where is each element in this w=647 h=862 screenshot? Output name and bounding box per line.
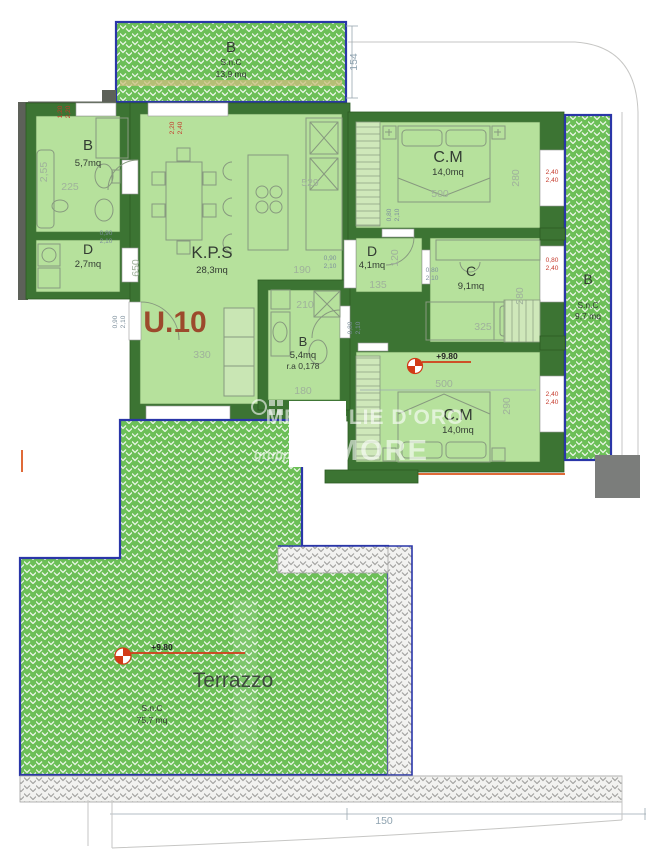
dim-bath-main-h: 2,55 [38,162,50,183]
svg-text:2,20: 2,20 [169,121,176,134]
terrace [20,420,418,775]
living-kitchen-label: K.P.S [191,243,232,262]
dim-win-right-top: 2,40 2,40 [546,169,559,184]
svg-text:0,80: 0,80 [546,257,559,264]
bedroom-top-area: 14,0mq [432,167,464,178]
elevation-value-bedroom: +9.80 [436,351,458,361]
dim-win-right-mid: 0,80 2,40 [546,257,559,272]
svg-text:2,10: 2,10 [355,321,362,334]
unit-label: U.10 [143,306,206,339]
elevation-value-terrace: +9.80 [151,642,173,652]
dim-living-passage: 190 [293,264,311,276]
svg-text:2,20: 2,20 [65,105,72,118]
floor-plan-drawing: B S.n.C 13,9 mq 154 1,20 2,20 2,20 2,40 … [0,0,647,862]
svg-text:2,40: 2,40 [546,391,559,398]
svg-text:0,80: 0,80 [347,321,354,334]
svg-text:2,10: 2,10 [100,238,113,245]
balcony-right-label: B [583,271,592,287]
dim-bedroom-top-w: 500 [431,188,449,200]
bath-second-ratio: r.a 0,178 [286,361,319,371]
svg-text:0,90: 0,90 [100,230,113,237]
dim-living-wall: 330 [193,349,211,361]
dim-bedroom-top-door: 0,80 2,10 [386,208,401,221]
svg-text:0,90: 0,90 [112,315,119,328]
dim-bedroom-single-h: 280 [514,287,526,305]
hallway-area: 4,1mq [359,260,385,271]
balcony-top-label: B [226,39,236,56]
redaction-patch [289,401,346,467]
terrace-area: 75,7 mq [137,715,168,725]
terrace-label: Terrazzo [193,669,274,692]
svg-text:2,40: 2,40 [546,177,559,184]
pillar [595,455,640,498]
living-kitchen-area: 28,3mq [196,265,228,276]
svg-text:2,10: 2,10 [394,208,401,221]
bath-main-label: B [83,137,93,154]
dim-hallway-h: 120 [389,249,401,267]
svg-text:2,40: 2,40 [177,121,184,134]
dim-kitchen-door: 0,90 2,10 [324,255,337,270]
dim-bedroom-top-h: 280 [510,169,522,187]
bath-second-area: 5,4mq [290,350,316,361]
dim-bedroom-bottom-h: 290 [501,397,513,415]
dim-win-top: 2,20 2,40 [169,121,184,134]
svg-text:0,80: 0,80 [386,208,393,221]
svg-text:1,20: 1,20 [57,105,64,118]
dim-bedroom-single-w: 325 [474,321,492,333]
dim-bath-main-w: 225 [61,181,79,193]
dim-bath-second-bottom: 180 [294,385,312,397]
bath-main-area: 5,7mq [75,158,101,169]
balcony-right-type: S.n.C [577,300,598,310]
floor-plan-page: B S.n.C 13,9 mq 154 1,20 2,20 2,20 2,40 … [0,0,647,862]
dim-win-left: 1,20 2,20 [57,105,72,118]
dim-balcony-top-depth: 154 [348,53,360,71]
terrace-type: S.n.C [141,703,162,713]
bath-second-label: B [299,334,308,349]
closet-area: 2,7mq [75,259,101,270]
dim-hallway-w: 135 [369,279,387,291]
dim-hallway-door: 0,80 2,10 [426,267,439,282]
svg-text:2,40: 2,40 [546,169,559,176]
svg-text:2,10: 2,10 [324,263,337,270]
walkway-vertical [388,546,412,775]
svg-text:0,90: 0,90 [324,255,337,262]
svg-text:2,10: 2,10 [120,315,127,328]
site-bottom [20,776,646,848]
dim-bedroom-bottom-w: 500 [435,378,453,390]
dim-win-right-bottom: 2,40 2,40 [546,391,559,406]
dim-bath-second-door: 0,80 2,10 [347,321,362,334]
balcony-right-area: 9,7 mq [575,311,601,321]
svg-text:2,40: 2,40 [546,265,559,272]
dim-bath-second-top: 210 [296,299,314,311]
balcony-top-type: S.n.C [220,57,241,67]
svg-text:2,10: 2,10 [426,275,439,282]
bedroom-single-area: 9,1mq [458,281,484,292]
dim-site-offset: 150 [375,815,393,827]
watermark-logo-text: MORE [334,435,429,467]
dim-living-h: 650 [130,259,142,277]
dim-living-w: 529 [301,177,319,189]
dim-entry-door: 0,90 2,10 [112,315,127,328]
dim-closet-door: 0,90 2,10 [100,230,113,245]
svg-text:0,80: 0,80 [426,267,439,274]
closet-label: D [83,241,93,257]
balcony-top-area: 13,9 mq [216,69,247,79]
svg-text:2,40: 2,40 [546,399,559,406]
bedroom-single-label: C [466,263,476,279]
hallway-label: D [367,243,377,259]
bedroom-top-label: C.M [433,149,462,166]
